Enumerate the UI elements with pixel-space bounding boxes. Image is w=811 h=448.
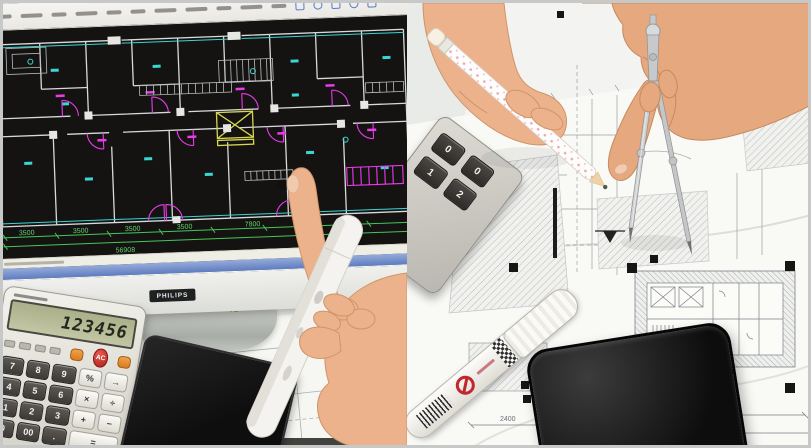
hands-and-tools xyxy=(407,3,811,445)
screenshot: 3500 3500 3500 3500 7800 56908 PHILIPS 1… xyxy=(0,0,811,448)
compass-tip xyxy=(687,241,692,255)
right-photo-blueprint-scene: 9000 20700 2400 0 0 1 2 xyxy=(407,3,811,445)
thumb xyxy=(300,327,341,358)
hand-with-pen xyxy=(3,3,407,445)
hand-holding-compass xyxy=(582,3,811,181)
left-photo-desk-scene: 3500 3500 3500 3500 7800 56908 PHILIPS 1… xyxy=(3,3,407,445)
fingernail xyxy=(287,175,299,193)
